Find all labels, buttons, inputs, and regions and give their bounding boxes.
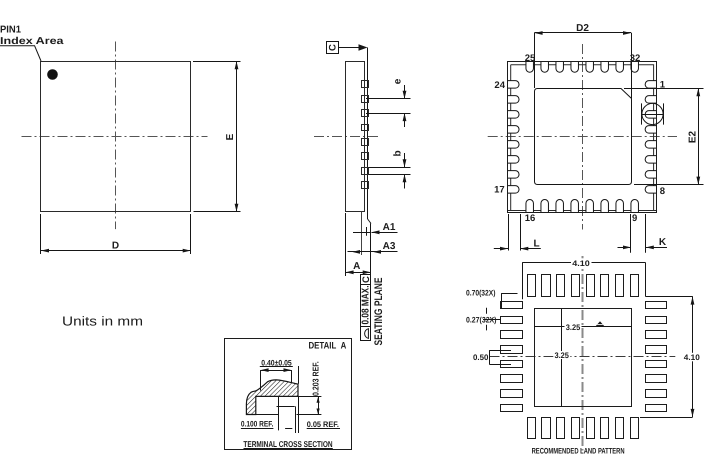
svg-text:E: E [225, 133, 236, 140]
svg-text:e: e [393, 78, 404, 84]
svg-text:0.70(32X): 0.70(32X) [466, 289, 496, 298]
svg-text:D: D [112, 240, 119, 251]
svg-text:3.25: 3.25 [566, 323, 581, 332]
svg-text:PIN1: PIN1 [0, 24, 21, 35]
svg-text:0.27(32X): 0.27(32X) [466, 316, 497, 325]
svg-text:C: C [328, 44, 339, 51]
svg-text:0.203 REF.: 0.203 REF. [310, 361, 320, 396]
svg-text:0.08 MAX.: 0.08 MAX. [361, 285, 372, 324]
svg-text:17: 17 [494, 185, 505, 196]
svg-text:Index Area: Index Area [0, 36, 64, 47]
svg-text:9: 9 [632, 213, 637, 224]
svg-text:E2: E2 [687, 130, 698, 143]
svg-text:16: 16 [525, 213, 536, 224]
svg-text:0.05 REF.: 0.05 REF. [307, 420, 339, 429]
svg-text:D2: D2 [576, 23, 589, 34]
svg-text:A1: A1 [383, 222, 396, 233]
svg-text:TERMINAL CROSS SECTION: TERMINAL CROSS SECTION [243, 439, 332, 449]
svg-text:4.10: 4.10 [572, 259, 590, 268]
svg-text:L: L [533, 238, 539, 249]
svg-text:4.10: 4.10 [684, 353, 701, 362]
svg-text:8: 8 [660, 186, 665, 197]
svg-text:b: b [393, 150, 404, 156]
svg-text:0.50: 0.50 [473, 353, 489, 362]
svg-text:Units in mm: Units in mm [62, 313, 143, 328]
svg-text:24: 24 [494, 80, 505, 91]
svg-text:3.25: 3.25 [554, 351, 569, 360]
svg-text:A: A [353, 261, 360, 272]
svg-text:SEATING PLANE: SEATING PLANE [373, 278, 385, 346]
svg-text:C: C [361, 276, 372, 283]
svg-text:K: K [659, 237, 667, 248]
svg-text:DETAIL A: DETAIL A [309, 340, 347, 351]
svg-text:A3: A3 [383, 241, 396, 252]
svg-text:RECOMMENDED LAND PATTERN: RECOMMENDED LAND PATTERN [532, 446, 625, 455]
svg-text:0.100 REF.: 0.100 REF. [241, 419, 274, 428]
